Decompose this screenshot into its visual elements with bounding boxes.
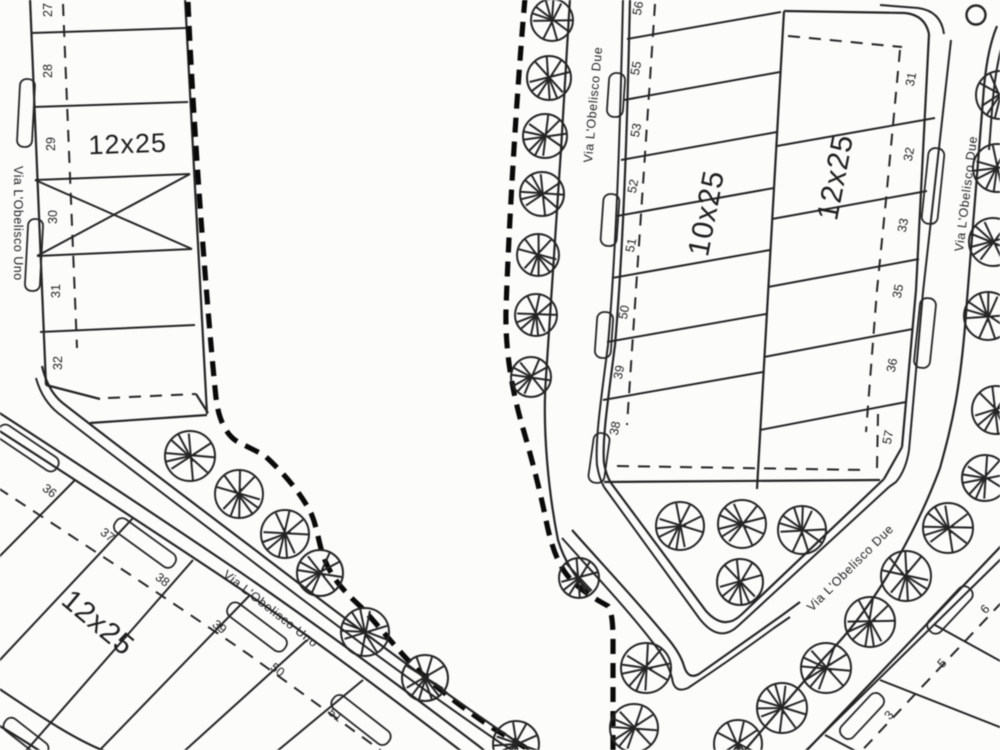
svg-text:50: 50: [616, 304, 632, 320]
svg-text:Via L'Obelisco Uno: Via L'Obelisco Uno: [11, 166, 25, 281]
svg-text:Via L'Obelisco Due: Via L'Obelisco Due: [581, 46, 605, 163]
svg-text:12x25: 12x25: [88, 128, 168, 161]
svg-text:52: 52: [625, 178, 641, 194]
svg-text:6: 6: [978, 602, 993, 617]
svg-text:39: 39: [611, 364, 627, 380]
svg-text:50: 50: [268, 660, 288, 680]
svg-text:31: 31: [49, 284, 63, 298]
svg-text:28: 28: [41, 64, 55, 78]
svg-text:56: 56: [630, 0, 646, 16]
svg-text:33: 33: [895, 217, 911, 233]
svg-text:51: 51: [623, 237, 639, 253]
svg-text:10x25: 10x25: [682, 167, 731, 258]
svg-text:5: 5: [935, 656, 950, 671]
svg-text:38: 38: [607, 420, 623, 436]
svg-text:32: 32: [901, 146, 917, 162]
svg-text:57: 57: [880, 429, 896, 445]
svg-text:27: 27: [41, 3, 55, 17]
svg-text:31: 31: [903, 71, 919, 87]
svg-text:29: 29: [44, 137, 58, 151]
svg-text:35: 35: [890, 283, 906, 299]
svg-text:12x25: 12x25: [55, 584, 140, 663]
svg-text:30: 30: [46, 210, 60, 224]
svg-text:32: 32: [51, 356, 65, 370]
svg-text:12x25: 12x25: [811, 131, 860, 222]
svg-text:36: 36: [884, 357, 900, 373]
svg-text:55: 55: [628, 60, 644, 76]
svg-text:53: 53: [628, 122, 644, 138]
